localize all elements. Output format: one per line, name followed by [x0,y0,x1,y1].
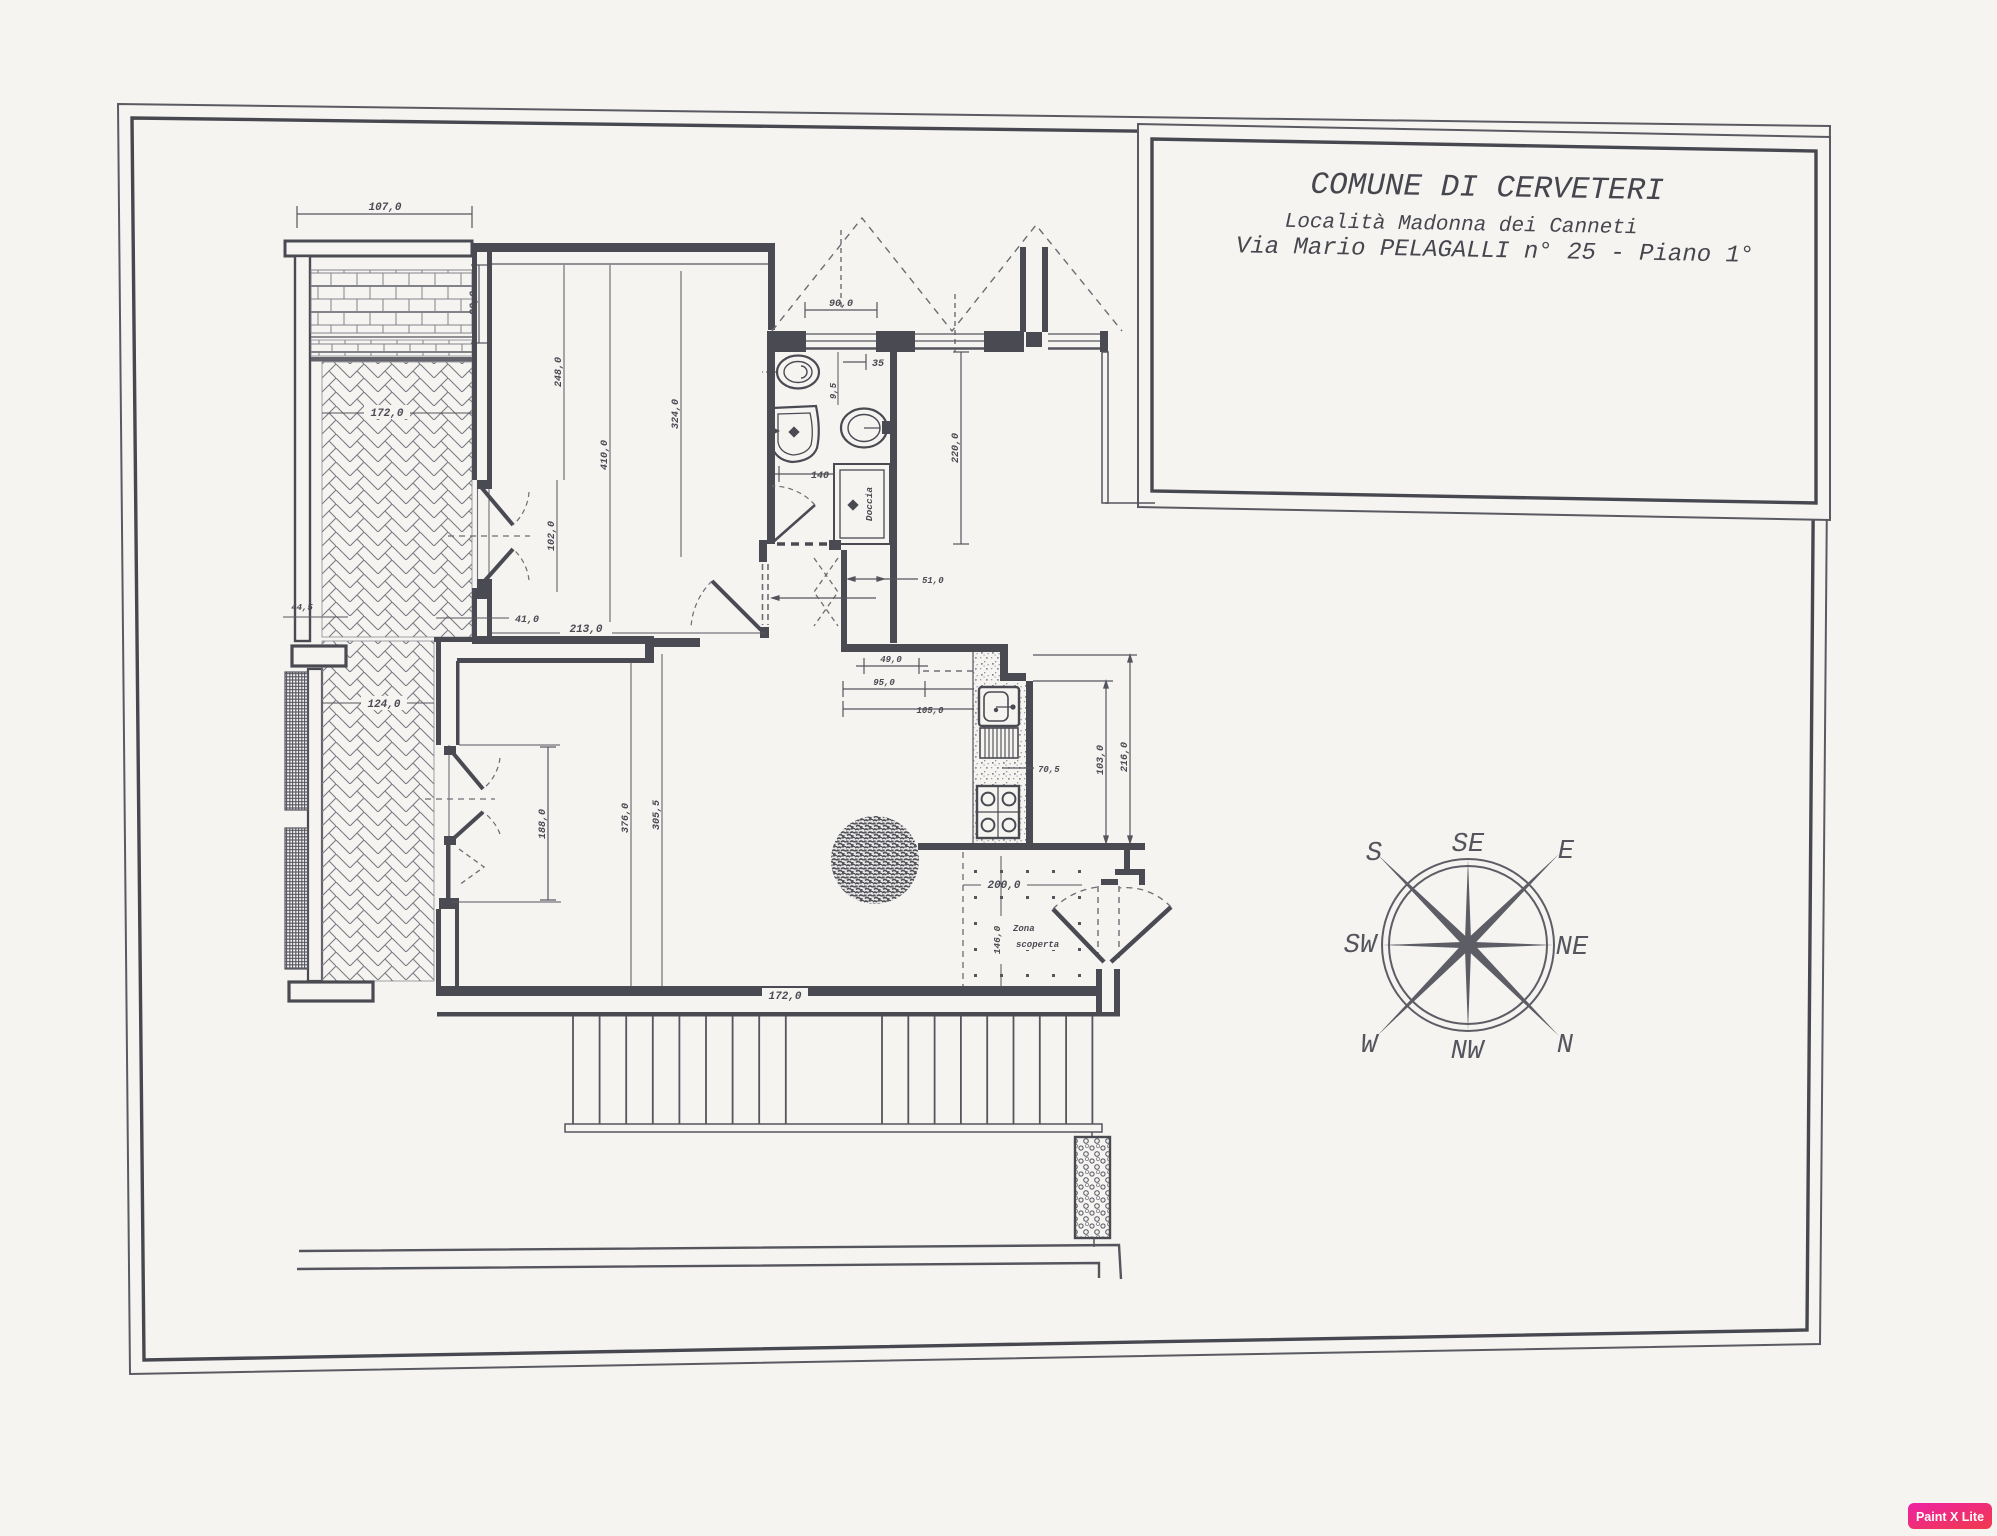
svg-text:95,0: 95,0 [873,678,895,688]
svg-text:COMUNE DI CERVETERI: COMUNE DI CERVETERI [1310,168,1664,209]
svg-text:70,5: 70,5 [1038,765,1060,775]
svg-text:NE: NE [1556,933,1589,963]
svg-text:103,0: 103,0 [1096,745,1107,775]
svg-text:S: S [1366,839,1382,869]
svg-text:216,0: 216,0 [1120,742,1131,772]
svg-text:376,0: 376,0 [621,803,632,833]
svg-text:9,5: 9,5 [829,382,839,399]
svg-text:172,0: 172,0 [370,408,403,420]
svg-text:172,0: 172,0 [768,991,801,1003]
svg-text:44,5: 44,5 [291,603,313,613]
svg-text:410,0: 410,0 [600,440,611,470]
svg-text:146,0: 146,0 [992,925,1003,954]
svg-text:213,0: 213,0 [569,624,602,636]
svg-text:324,0: 324,0 [671,399,682,429]
svg-text:90,0: 90,0 [829,299,853,310]
svg-text:140: 140 [811,471,829,482]
svg-text:Zona: Zona [1012,924,1035,934]
svg-text:NW: NW [1451,1037,1486,1067]
svg-text:49,0: 49,0 [880,655,902,665]
svg-text:305,5: 305,5 [652,800,663,830]
svg-text:N: N [1557,1031,1574,1061]
svg-text:124,0: 124,0 [367,699,400,711]
svg-text:scoperta: scoperta [1016,940,1059,950]
svg-text:Doccia: Doccia [864,487,875,522]
svg-text:200,0: 200,0 [987,880,1020,892]
svg-text:248,0: 248,0 [554,357,565,387]
svg-text:188,0: 188,0 [538,809,549,839]
svg-text:W: W [1361,1031,1380,1061]
svg-text:220,0: 220,0 [951,433,962,463]
svg-text:41,0: 41,0 [515,615,539,626]
svg-text:E: E [1558,837,1575,867]
svg-text:35: 35 [872,359,884,370]
svg-text:105,0: 105,0 [916,706,944,716]
svg-text:51,0: 51,0 [922,576,944,586]
svg-text:SE: SE [1452,830,1485,860]
svg-text:SW: SW [1344,931,1379,961]
svg-text:102,0: 102,0 [547,521,558,551]
svg-text:107,0: 107,0 [368,202,401,214]
svg-text:Paint X Lite: Paint X Lite [1916,1510,1984,1524]
